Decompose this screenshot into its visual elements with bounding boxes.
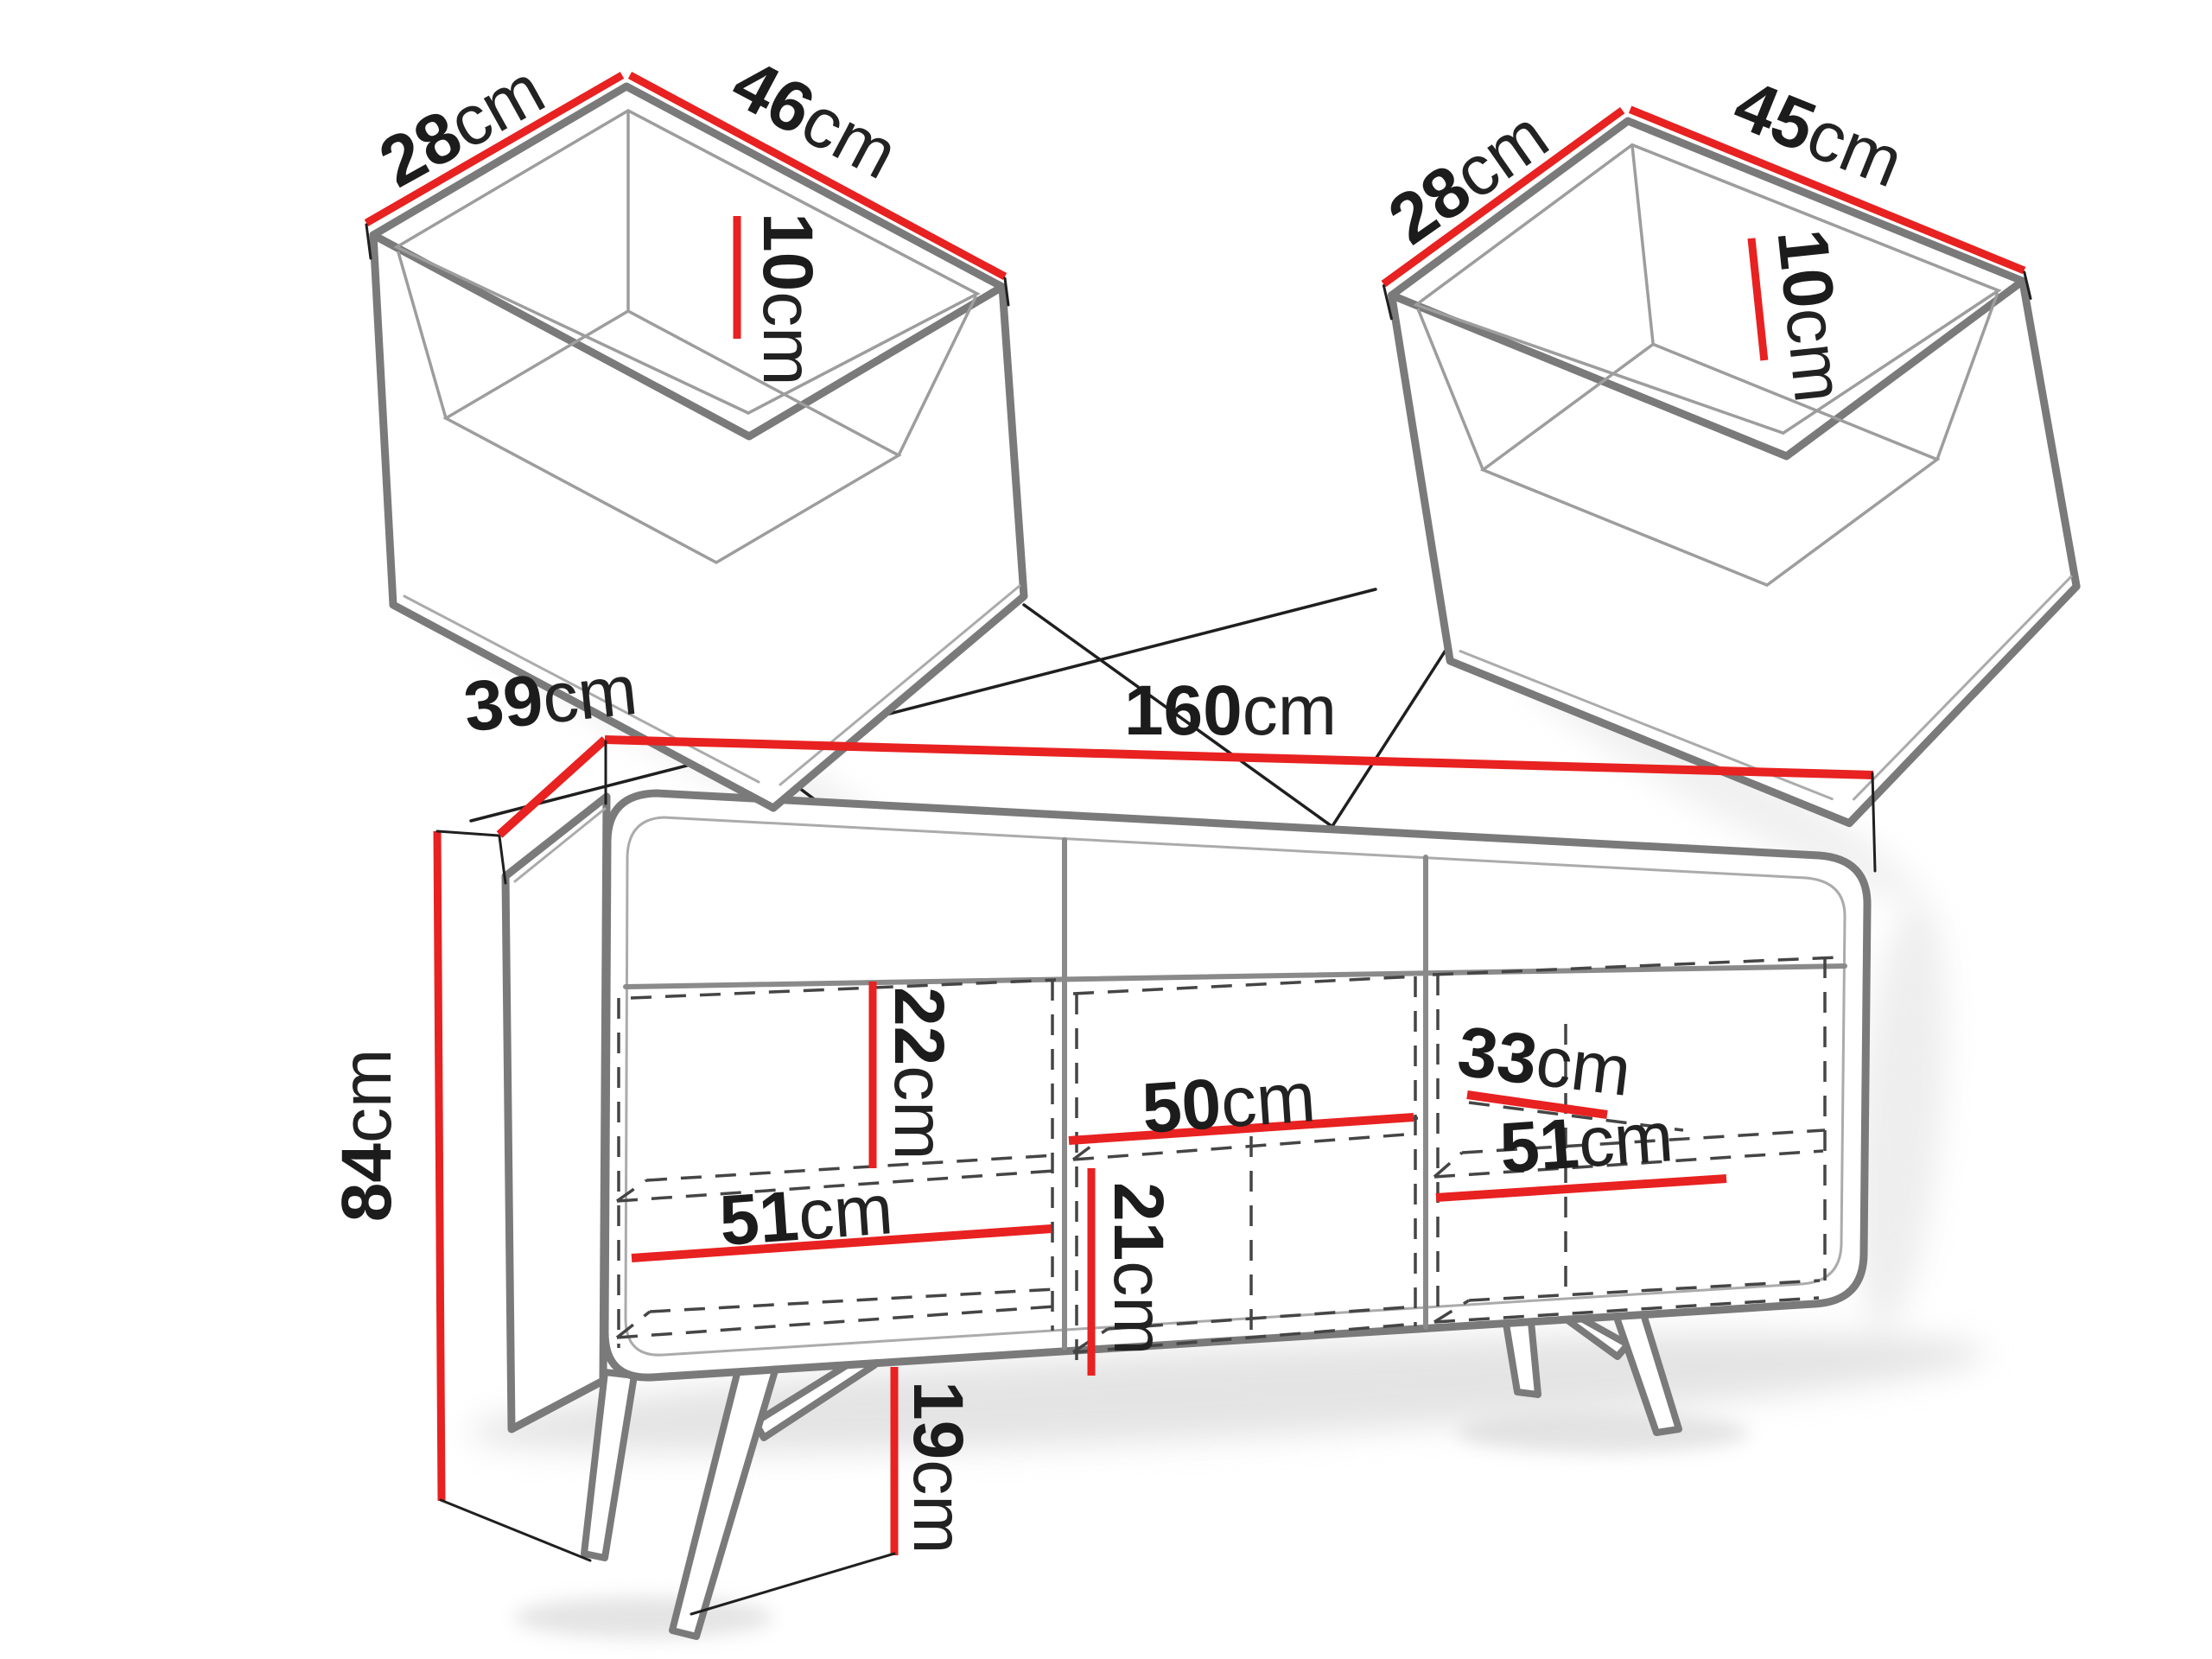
dim-cabinet-width-label: 160cm (1124, 671, 1337, 750)
dim-cabinet-height-label: 84cm (327, 1049, 406, 1223)
diagram-canvas: 28cm 46cm 10cm 28cm 45cm 10cm 39cm 160cm… (0, 0, 2212, 1659)
dim-51-left-label: 51cm (717, 1170, 895, 1261)
dim-51-right-label: 51cm (1497, 1097, 1675, 1188)
dim-21-label: 21cm (1099, 1182, 1178, 1356)
furniture-dimension-diagram: 28cm 46cm 10cm 28cm 45cm 10cm 39cm 160cm… (0, 0, 2212, 1659)
right-drawer: 28cm 45cm 10cm (1364, 37, 2098, 866)
dim-cabinet-depth-label: 39cm (461, 651, 641, 747)
cabinet-side-panel (505, 797, 607, 1429)
dim-left-drawer-height-label: 10cm (748, 213, 827, 386)
leg-left-back (584, 1372, 634, 1558)
dim-22-label: 22cm (880, 987, 958, 1160)
dim-50-label: 50cm (1140, 1058, 1318, 1148)
cabinet (505, 793, 1867, 1637)
dim-legs-label: 19cm (899, 1381, 977, 1554)
dimension-line-cabinet-height (437, 831, 442, 1501)
